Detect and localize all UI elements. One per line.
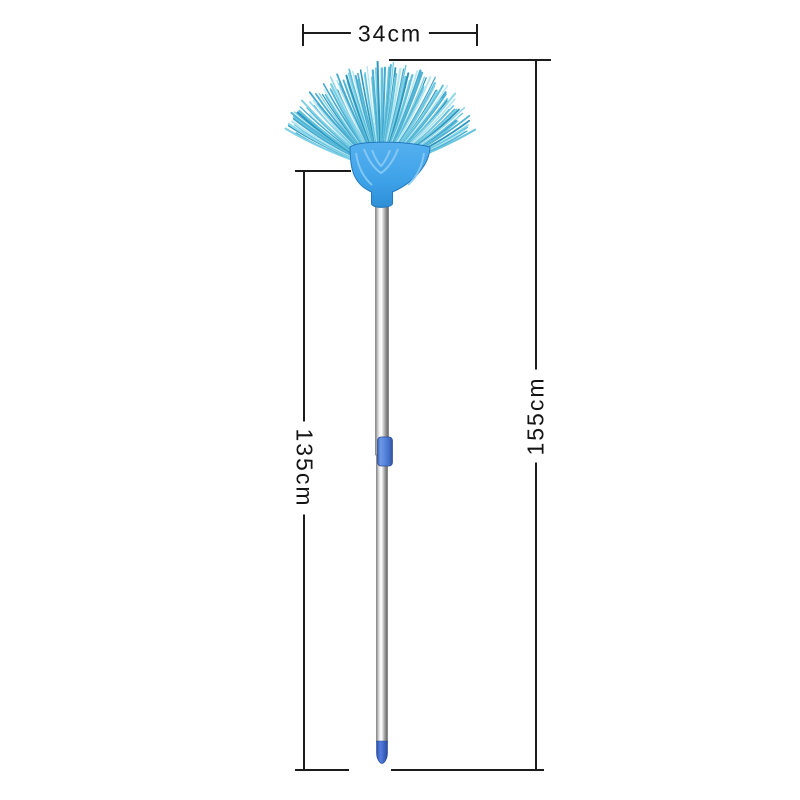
total-length-label: 155cm [522, 369, 549, 462]
product-dimension-figure: 34cm 135cm 155cm [0, 0, 800, 800]
telescopic-lock-collar [378, 437, 393, 466]
head-width-label: 34cm [351, 20, 429, 47]
pole-tip-cap [377, 741, 388, 764]
pole-lower-tube [377, 455, 388, 742]
pole-upper-tube [376, 204, 389, 455]
duster-illustration [0, 0, 800, 800]
handle-length-label: 135cm [290, 421, 317, 514]
